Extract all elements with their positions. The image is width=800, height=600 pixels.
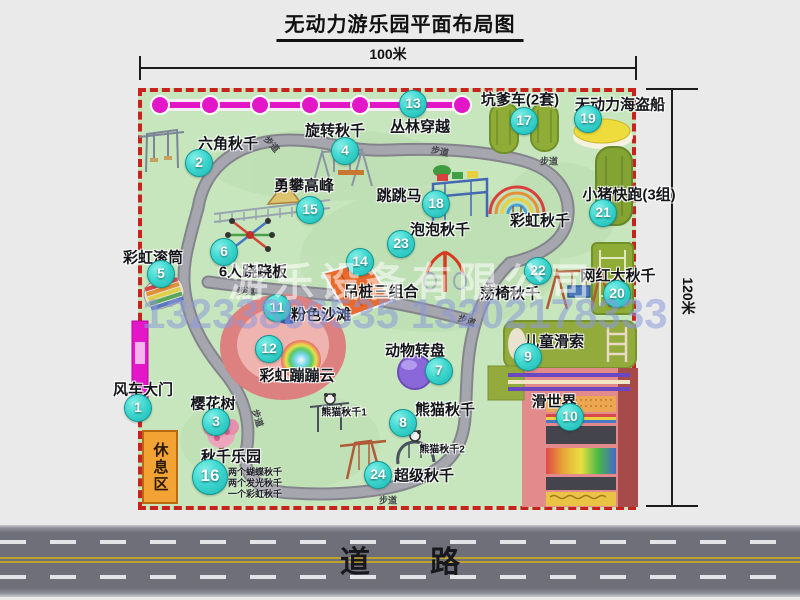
label-pink-beach: 粉色沙滩 xyxy=(291,304,351,325)
page: 无动力游乐园平面布局图 100米 120米 xyxy=(0,0,800,600)
swing-park-note-2: 两个发光秋千 xyxy=(228,479,282,488)
badge-rainbow-roller: 5 xyxy=(147,260,175,288)
badge-rainbow-cloud: 12 xyxy=(255,335,283,363)
label-panda-swing-2: 熊猫秋千2 xyxy=(419,441,465,456)
road: 道 路 xyxy=(0,525,800,597)
swing-park-note-1: 两个蝴蝶秋千 xyxy=(228,468,282,477)
label-chair-swing: 荡椅秋千 xyxy=(480,283,540,304)
label-hanging-pile: 吊桩三组合 xyxy=(343,281,418,302)
badge-chair-swing: 22 xyxy=(524,257,552,285)
badge-kids-zipline: 9 xyxy=(514,343,542,371)
dimension-tick xyxy=(635,56,637,80)
page-title: 无动力游乐园平面布局图 xyxy=(277,8,524,42)
badge-hanging-pile: 14 xyxy=(346,248,374,276)
label-hex-swing: 六角秋千 xyxy=(198,133,258,154)
badge-piggy-run: 21 xyxy=(589,199,617,227)
trail-label: 步道 xyxy=(540,155,558,168)
badge-pit-car: 17 xyxy=(510,107,538,135)
road-label: 道 路 xyxy=(340,537,460,581)
dimension-height-label: 120米 xyxy=(678,277,698,314)
label-peak-climb: 勇攀高峰 xyxy=(274,175,334,196)
badge-cherry-tree: 3 xyxy=(202,408,230,436)
badge-slide-world: 10 xyxy=(556,403,584,431)
label-panda-swing: 熊猫秋千 xyxy=(415,399,475,420)
badge-swing-park: 16 xyxy=(192,459,228,495)
dimension-width-label: 100米 xyxy=(369,44,406,64)
badge-jungle-crossing: 13 xyxy=(399,90,427,118)
badge-peak-climb: 15 xyxy=(296,196,324,224)
rest-area: 休息区 xyxy=(142,430,178,504)
badge-panda-swing: 8 xyxy=(389,409,417,437)
label-super-swing: 超级秋千 xyxy=(394,465,454,486)
badge-jump-horse: 18 xyxy=(422,190,450,218)
dimension-tick xyxy=(139,56,141,80)
swing-park-note-3: 一个彩虹秋千 xyxy=(228,490,282,499)
dimension-height-line xyxy=(671,89,673,506)
badge-super-swing: 24 xyxy=(364,461,392,489)
label-rainbow-swing: 彩虹秋千 xyxy=(510,210,570,231)
trail-label: 步道 xyxy=(237,285,255,298)
badge-pink-beach: 11 xyxy=(263,294,291,322)
badge-big-swing: 20 xyxy=(603,280,631,308)
badge-pirate-ship: 19 xyxy=(574,105,602,133)
badge-animal-turntable: 7 xyxy=(425,357,453,385)
label-rainbow-cloud: 彩虹蹦蹦云 xyxy=(259,365,334,386)
dimension-tick xyxy=(646,88,698,90)
badge-six-seesaw: 6 xyxy=(210,238,238,266)
dimension-tick xyxy=(646,505,698,507)
badge-rotating-swing: 4 xyxy=(331,137,359,165)
trail-label: 步道 xyxy=(379,494,397,507)
badge-windmill-gate: 1 xyxy=(124,394,152,422)
label-panda-swing-1: 熊猫秋千1 xyxy=(321,404,367,419)
label-bubble-swing: 泡泡秋千 xyxy=(410,219,470,240)
badge-bubble-swing: 23 xyxy=(387,230,415,258)
label-jump-horse: 跳跳马 xyxy=(376,185,421,206)
dimension-width-line xyxy=(140,67,636,69)
label-jungle-crossing: 丛林穿越 xyxy=(390,116,450,137)
label-rotating-swing: 旋转秋千 xyxy=(305,120,365,141)
badge-hex-swing: 2 xyxy=(185,149,213,177)
